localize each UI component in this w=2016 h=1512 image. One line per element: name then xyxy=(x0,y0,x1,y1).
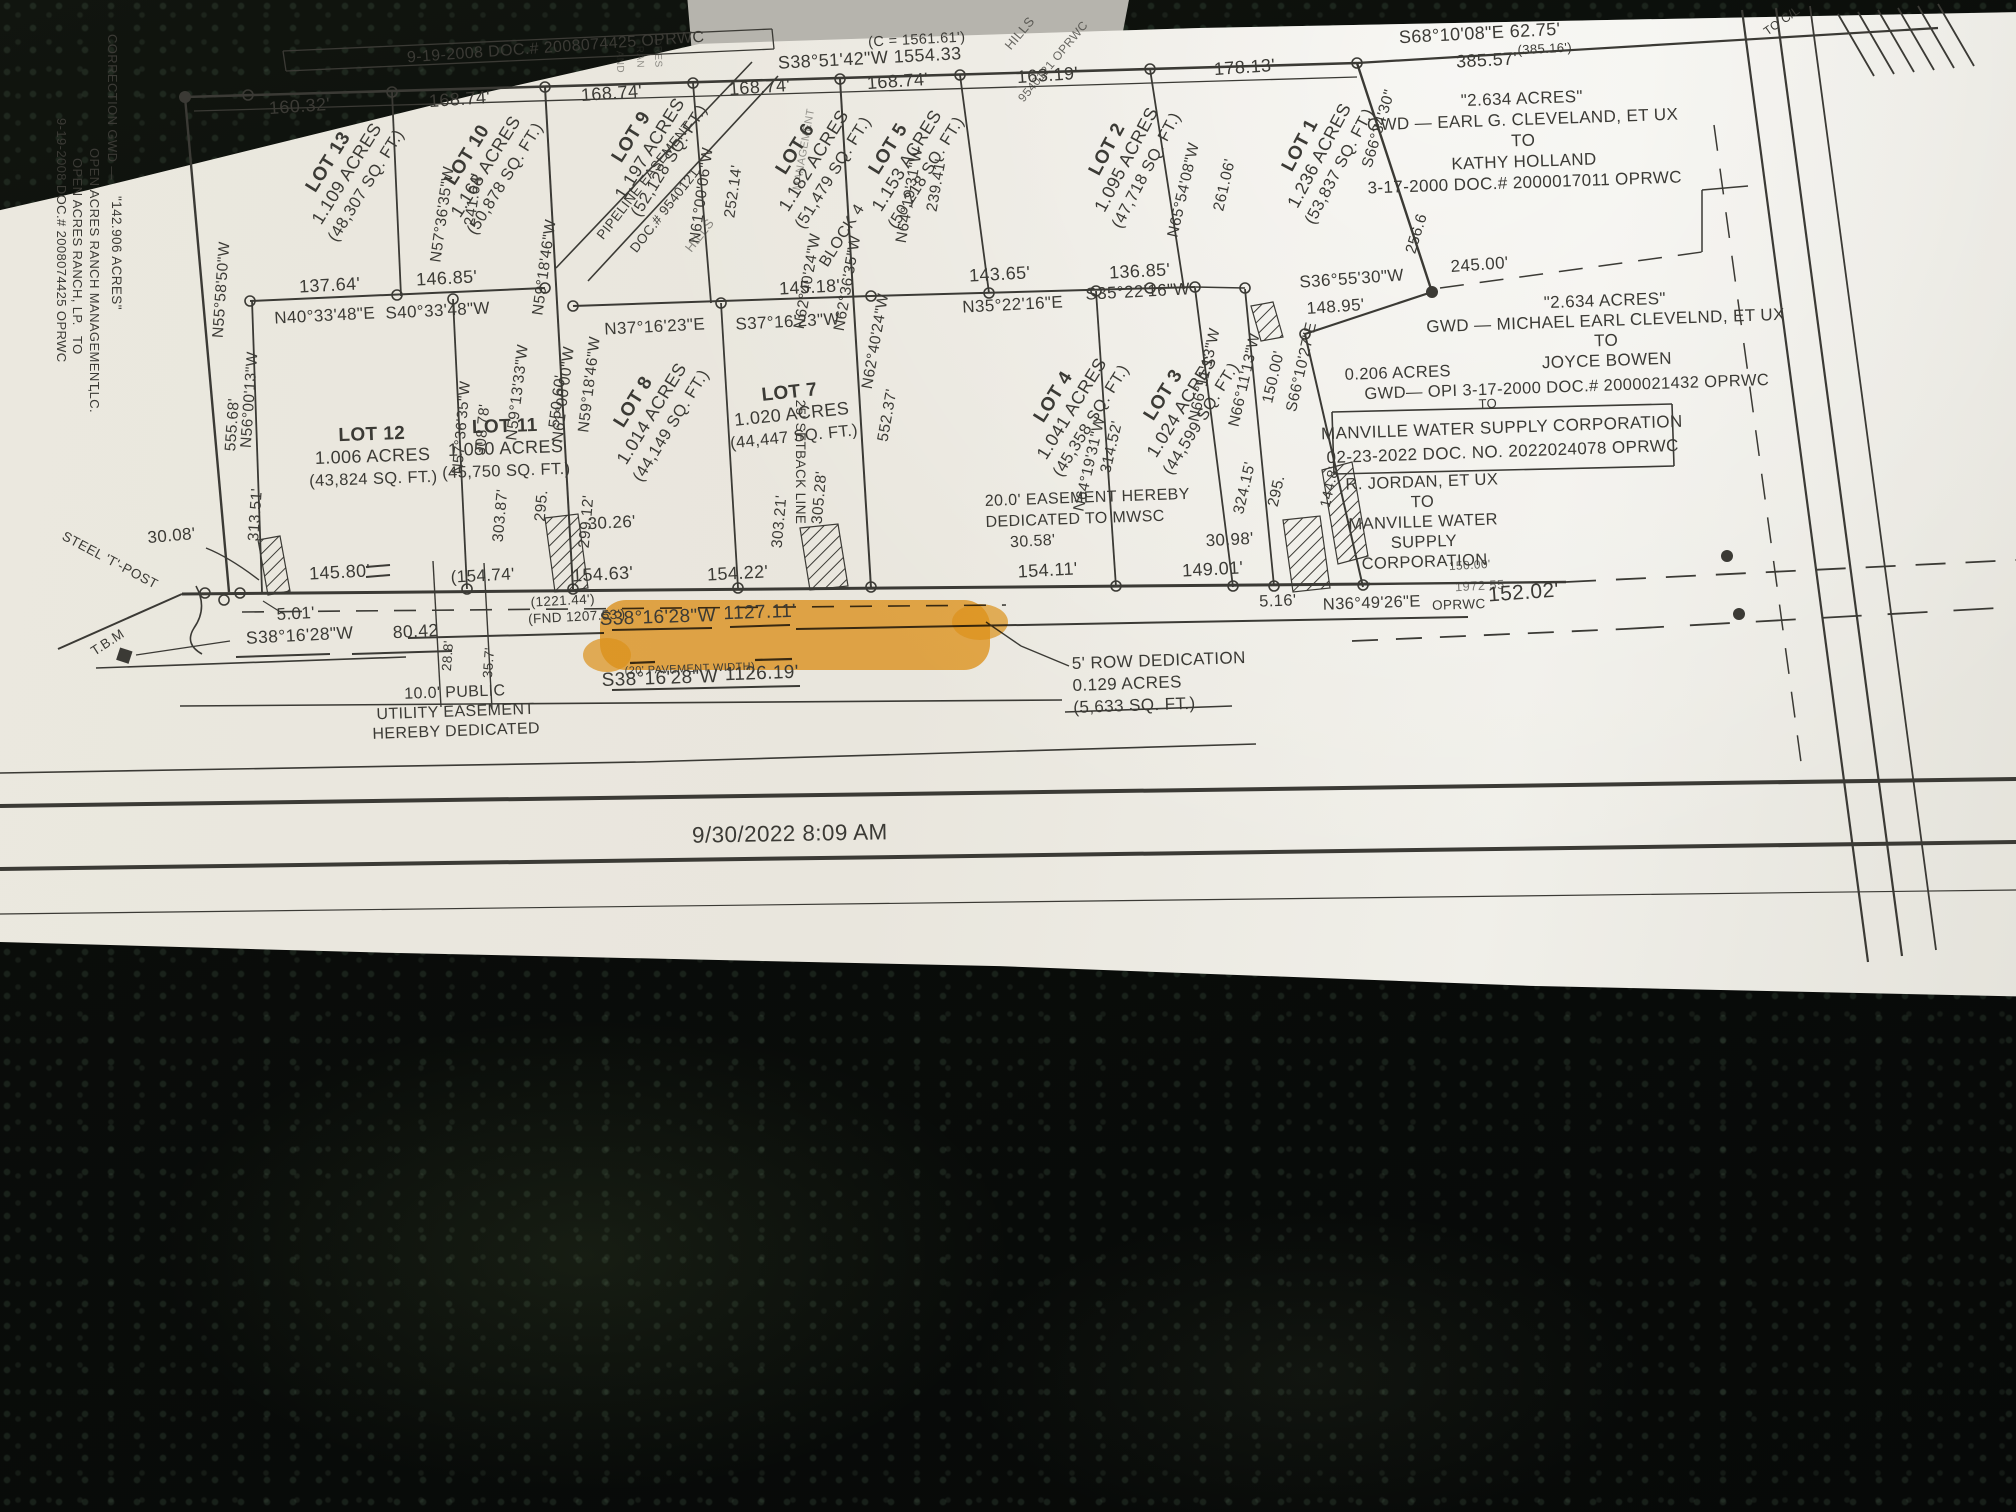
note-line: (5,633 SQ. FT.) xyxy=(1073,694,1196,717)
plat-line xyxy=(180,700,1062,706)
bearing-label: S36°55'30"W xyxy=(1299,265,1405,291)
plat-line xyxy=(182,584,1370,594)
bearing-label: 1127.11' xyxy=(723,601,796,625)
bearing-label: 168.74' xyxy=(728,75,791,99)
bearing-label: 148.95' xyxy=(1306,295,1365,318)
bearing-label: 150.00' xyxy=(1259,349,1288,405)
plat-line xyxy=(283,51,286,71)
note-line: HEREBY DEDICATED xyxy=(372,720,540,743)
bearing-label: 261.06' xyxy=(1210,157,1239,213)
lot-label-group: LOT 11.236 ACRES(53,837 SQ. FT.) xyxy=(1261,84,1378,227)
note-line: 5' ROW DEDICATION xyxy=(1071,648,1246,673)
bearing-label: S35°22'16"W xyxy=(1085,279,1190,303)
deed-line: SUPPLY xyxy=(1390,532,1457,552)
plat-line xyxy=(1918,6,1954,68)
deed-line: TO xyxy=(1511,131,1536,151)
plat-note: 10.0' PUBLICUTILITY EASEMENTHEREBY DEDIC… xyxy=(371,681,540,743)
deed-record: R. JORDAN, ET UXTOMANVILLE WATERSUPPLYCO… xyxy=(1345,470,1501,573)
plat-line xyxy=(1714,125,1801,762)
plat-line xyxy=(1332,404,1672,412)
plat-line xyxy=(185,97,229,592)
plat-line xyxy=(0,890,2016,914)
deed-record: "2.634 ACRES"GWD — MICHAEL EARL CLEVELND… xyxy=(1425,285,1786,376)
plat-line xyxy=(1352,629,1624,641)
plat-line xyxy=(1702,186,1748,190)
deed-line: 3-17-2000 DOC.# 2000017011 OPRWC xyxy=(1367,167,1682,197)
bearing-label: 0.206 ACRES xyxy=(1344,362,1451,384)
bearing-label: 30.26' xyxy=(587,512,636,533)
plat-line xyxy=(352,651,452,654)
bearing-label: 154.22' xyxy=(707,561,769,584)
date-stamp: 9/30/2022 8:09 AM xyxy=(692,819,888,847)
lot-label-group: LOT 21.095 ACRES(47,718 SQ. FT.) xyxy=(1068,88,1185,231)
bearing-label: (154.74' xyxy=(450,564,515,586)
bearing-label: 178.13' xyxy=(1213,55,1276,79)
bearing-label: N40°33'48"E xyxy=(274,303,376,327)
plat-line xyxy=(1838,14,1874,76)
boundary-monument xyxy=(1721,550,1733,562)
bearing-label: 313.51' xyxy=(245,488,266,542)
bearing-label: 154.11' xyxy=(1017,558,1078,581)
easement-hatch xyxy=(258,536,290,595)
bearing-label: N35°22'16"E xyxy=(962,292,1064,316)
plat-line xyxy=(0,842,2016,869)
plat-line xyxy=(642,744,1256,762)
bearing-label: (1221.44') xyxy=(530,591,595,609)
lot-acres: 1.006 ACRES xyxy=(315,444,431,468)
lot-name: LOT 12 xyxy=(338,423,406,446)
bearing-label: N56°00'13"W xyxy=(238,351,262,449)
bearing-label: S40°33'48"W xyxy=(385,298,490,322)
lot-label-group: LOT 131.109 ACRES(48,307 SQ. FT.) xyxy=(285,102,407,245)
bearing-label: S38°51'42"W 1554.33 xyxy=(777,43,962,73)
deed-line: TO xyxy=(1411,493,1435,512)
plat-line xyxy=(96,657,406,668)
bearing-label: 168.74' xyxy=(580,81,643,105)
bearing-label: 152.02' xyxy=(1487,579,1559,607)
plat-line xyxy=(0,779,2016,806)
plat-line xyxy=(1776,8,1902,956)
margin-note: TO xyxy=(70,336,85,355)
margin-note: 9-19-2008 DOC.# 2008074425 OPRWC xyxy=(54,118,69,363)
bearing-label: TO C/L xyxy=(1761,3,1803,38)
note-line: 0.129 ACRES xyxy=(1072,672,1182,695)
bearing-label: 146.85' xyxy=(416,266,478,289)
lot-label-group: LOT 81.014 ACRES(44,149 SQ. FT.) xyxy=(590,342,712,485)
bearing-label: HILLS xyxy=(1002,14,1038,53)
bearing-label: 252.14' xyxy=(721,164,745,219)
bearing-label: RAN xyxy=(634,46,646,69)
plat-line xyxy=(1878,10,1914,72)
bearing-label: S37°16'23"W xyxy=(735,309,840,333)
lot-label-group: LOT 31.024 ACRES(44,599 SQ. FT.) xyxy=(1120,335,1242,478)
bearing-label: 28.8' xyxy=(439,640,456,672)
bearing-label: N55°58'50"W xyxy=(210,241,234,339)
deed-record: MANVILLE WATER SUPPLY CORPORATION02-23-2… xyxy=(1321,412,1684,468)
bearing-label: 168.74' xyxy=(428,87,491,111)
deed-line: TO xyxy=(1594,331,1619,351)
bearing-label: S66°10'27"E xyxy=(1283,321,1320,414)
plat-line xyxy=(1938,4,1974,66)
boundary-monument xyxy=(179,91,191,103)
bearing-label: 1126.19' xyxy=(724,662,799,686)
bearing-label: S38°16'28"W xyxy=(245,622,354,648)
plat-line xyxy=(1195,287,1245,288)
bearing-label: 145.80' xyxy=(309,560,371,583)
plat-line xyxy=(392,92,401,296)
note-line: 20.0' EASEMENT HEREBY xyxy=(985,486,1190,510)
bearing-label: 35.7' xyxy=(480,647,497,679)
bearing-label: 160.32' xyxy=(268,94,331,118)
bearing-label: 305.28' xyxy=(809,470,831,524)
tbm-marker xyxy=(116,647,132,663)
plat-line xyxy=(136,641,230,655)
bearing-label: N62°40'24"W xyxy=(859,292,893,390)
plat-line xyxy=(1898,8,1934,70)
bearing-label: 149.01' xyxy=(1182,557,1244,580)
margin-note: LLC. xyxy=(87,384,102,413)
bearing-label: 168.74' xyxy=(866,69,929,93)
margin-note: "142.906 ACRES" xyxy=(109,196,124,310)
deed-line: GWD — EARL G. CLEVELAND, ET UX xyxy=(1367,105,1679,135)
bearing-label: DRES xyxy=(651,38,663,68)
bearing-label: 136.85' xyxy=(1109,259,1171,282)
plat-line xyxy=(1624,607,2016,629)
bearing-label: 30.58' xyxy=(1010,532,1056,551)
plat-line xyxy=(1858,12,1894,74)
bearing-label: AND xyxy=(614,51,626,74)
lot-label-group: LOT 71.020 ACRES(44,447 SQ. FT.) xyxy=(724,375,858,452)
deed-record: "2.634 ACRES"GWD — EARL G. CLEVELAND, ET… xyxy=(1364,84,1682,198)
lot-corner-marker xyxy=(219,595,229,605)
bearing-label: 30.98' xyxy=(1205,529,1254,550)
lot-sqft: (43,824 SQ. FT.) xyxy=(309,468,438,490)
bearing-label: N37°16'23"E xyxy=(604,314,706,338)
bearing-label: 80.42 xyxy=(392,620,439,642)
bearing-label: 303.21' xyxy=(769,494,791,548)
bearing-label: S38°16'28"W xyxy=(601,666,718,691)
plat-line xyxy=(1334,466,1674,474)
plat-line xyxy=(960,75,989,293)
bearing-label: 143.65' xyxy=(969,262,1031,285)
plat-line xyxy=(1742,10,1868,962)
bearing-label: 137.64' xyxy=(299,273,361,296)
bearing-label: 295. xyxy=(532,489,552,522)
bearing-label: N36°49'26"E xyxy=(1323,592,1422,613)
bearing-label: 303.87' xyxy=(490,488,512,542)
bearing-label: 5.01' xyxy=(276,603,315,624)
margin-note: OPEN ACRES RANCH, LP. xyxy=(70,158,85,326)
bearing-label: OPRWC xyxy=(1432,596,1486,613)
bearing-label: 25' SETBACK LINE xyxy=(793,400,808,525)
plat-line xyxy=(1810,6,1936,950)
bearing-label: 154.63' xyxy=(572,562,634,585)
bearing-label: STEEL 'T'-POST xyxy=(60,528,161,591)
photo-of-plat-document: LOT 131.109 ACRES(48,307 SQ. FT.)LOT 101… xyxy=(0,0,2016,1512)
plat-line xyxy=(0,762,642,773)
bearing-label: 295. xyxy=(1265,474,1289,509)
deed-line: JOYCE BOWEN xyxy=(1542,349,1673,373)
plat-line xyxy=(772,29,774,49)
plat-line xyxy=(1566,560,2016,582)
plat-line xyxy=(1021,646,1069,666)
plat-drawing: LOT 131.109 ACRES(48,307 SQ. FT.)LOT 101… xyxy=(0,0,2016,1512)
margin-note: OPEN ACRES RANCH MANAGEMENT, xyxy=(87,148,102,393)
plat-line xyxy=(206,548,259,580)
bearing-label: (385.16') xyxy=(1517,40,1572,58)
boundary-monument xyxy=(1733,608,1745,620)
note-line: 10.0' PUBLIC xyxy=(404,682,506,703)
note-line: DEDICATED TO MWSC xyxy=(985,508,1165,531)
bearing-label: S38°16'28"W xyxy=(599,605,716,630)
deed-line: KATHY HOLLAND xyxy=(1451,149,1597,173)
bearing-label: 552.37' xyxy=(875,388,901,443)
boundary-monument xyxy=(1426,286,1438,298)
easement-hatch xyxy=(1283,516,1330,592)
bearing-label: 30.08' xyxy=(147,524,197,547)
bearing-label: 5.16' xyxy=(1259,591,1297,610)
bearing-label: 385.57' xyxy=(1456,48,1518,71)
bearing-label: N57°36'35"W xyxy=(449,380,474,475)
bearing-label: N65°54'08"W xyxy=(1164,141,1202,239)
plat-line xyxy=(236,654,330,657)
bearing-label: 245.00' xyxy=(1450,253,1509,276)
bearing-label: 324.15' xyxy=(1230,460,1259,516)
deed-line: "2.634 ACRES" xyxy=(1460,87,1583,110)
lot-label-group: LOT 121.006 ACRES(43,824 SQ. FT.) xyxy=(307,422,438,490)
easement-hatch xyxy=(800,524,848,590)
deed-line: MANVILLE WATER xyxy=(1348,510,1498,533)
margin-note: CORRECTION GWD — xyxy=(105,34,120,180)
bearing-label: N59°18'46"W xyxy=(575,335,604,433)
